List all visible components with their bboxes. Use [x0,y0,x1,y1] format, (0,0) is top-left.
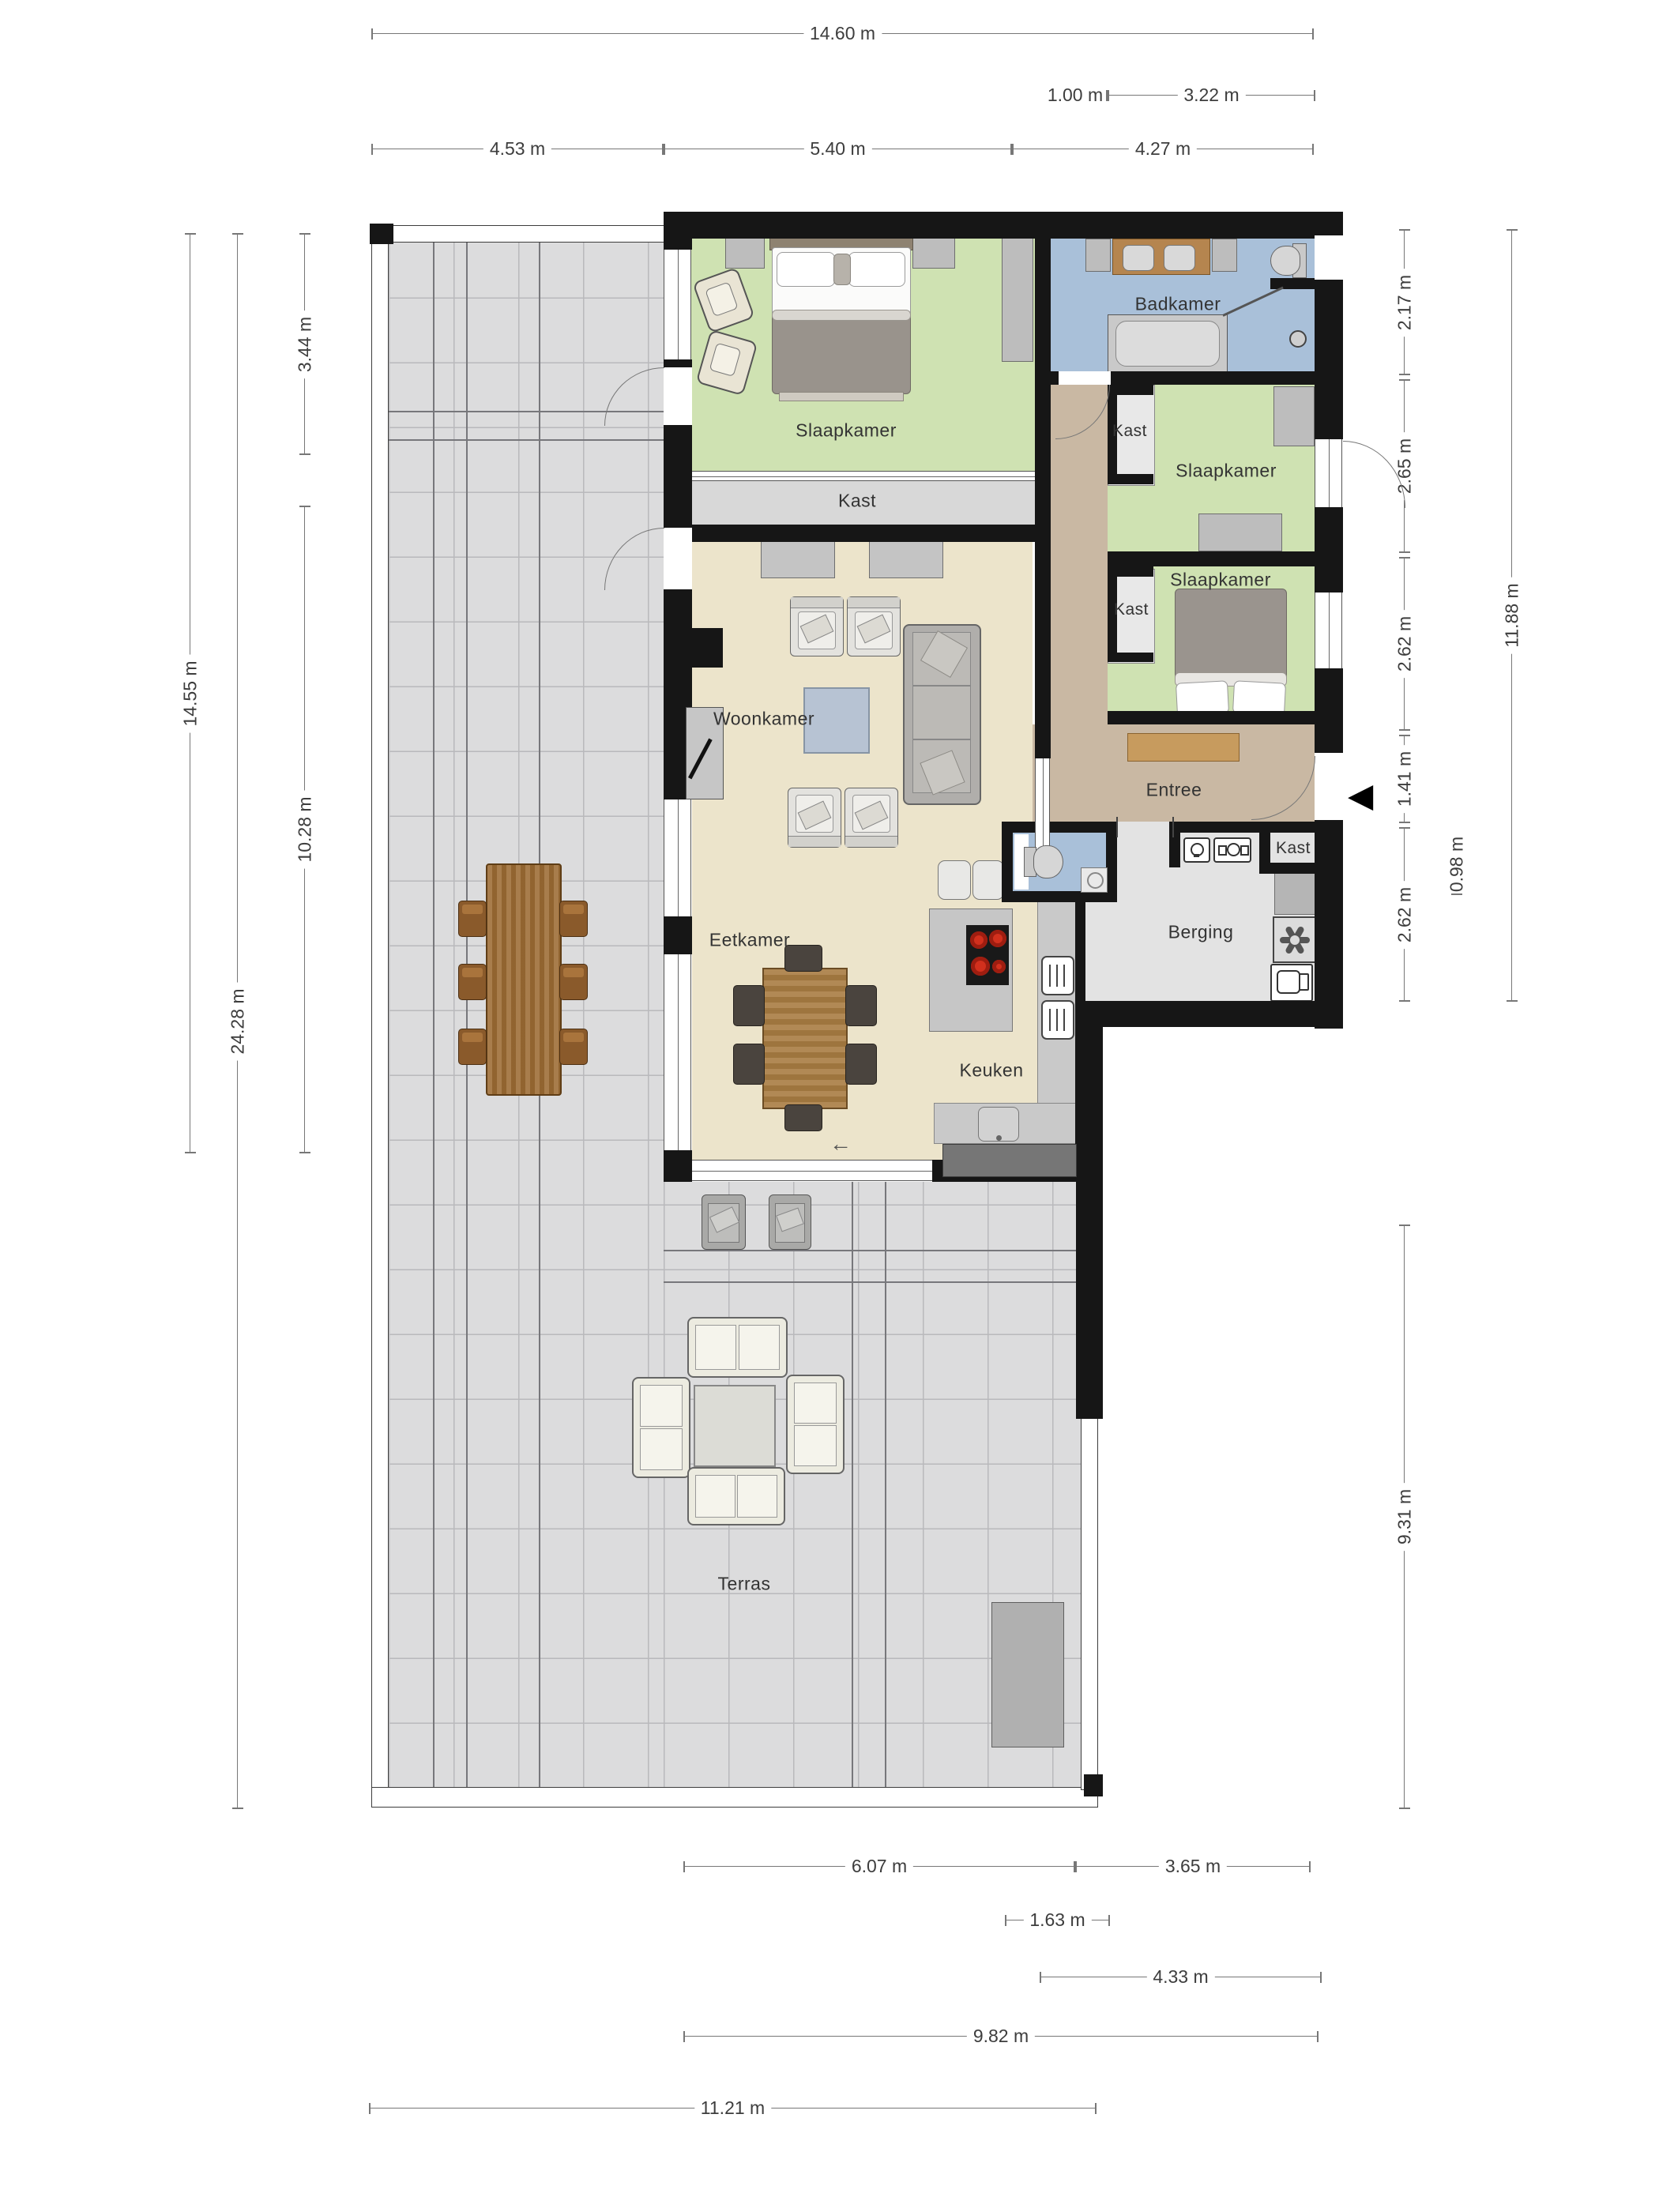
burner [971,957,990,976]
chair-back [563,968,584,977]
dim-label: 4.33 m [1146,1966,1214,1988]
dim-right-2-65: 2.65 m [1404,379,1405,553]
toilet-niche [1315,235,1343,280]
oven-bar [1056,1009,1058,1031]
dim-top-1-00: 1.00 m [1043,95,1108,96]
toilet-bowl [1270,246,1300,276]
entrance-arrow-icon: ◀ [1348,776,1373,814]
berging-opening-tick [1116,817,1118,837]
fuse [1240,845,1249,856]
oven-bar [1063,1009,1065,1031]
dining-chair [733,1044,765,1085]
wall-bathroom-bottom-stub [1051,371,1059,385]
kast-strip-sliding-doors [692,471,1035,481]
chair-back [791,597,843,608]
seat [737,1475,777,1518]
oven-bar [1063,965,1065,987]
terrace-armchair [702,1194,746,1250]
seat [739,1325,780,1370]
bar-stool [972,860,1004,900]
dim-label: 14.55 m [180,654,201,732]
outdoor-chair [559,1029,588,1065]
sliding-door-arrow-icon: ← [829,1131,852,1157]
chair-back [788,836,841,847]
terrace-planter [991,1602,1064,1747]
bed-pillow [777,252,835,287]
terrace-railing-bottom [371,1787,1098,1808]
dim-bottom-11-21: 11.21 m [369,2108,1097,2109]
window [664,954,691,1150]
sofa-cushion [912,686,971,739]
closet-wall [1108,385,1153,395]
wall-kitchen-right [1075,1001,1103,1182]
room-label-berging: Berging [1168,922,1234,943]
room-label-kast-3: Kast [1114,600,1149,619]
wall-left [664,212,692,250]
dim-label: 1.00 m [1041,85,1109,106]
dim-bottom-4-33: 4.33 m [1040,1977,1322,1977]
dial [1227,843,1240,856]
dim-right-0-98: 0.98 m [1456,833,1457,895]
dining-chair [845,1044,877,1085]
dim-bottom-3-65: 3.65 m [1075,1866,1311,1867]
wall-right [1315,820,1343,1029]
tile-joint [433,243,434,1789]
desk [1273,386,1315,446]
wall-right [1315,507,1343,592]
room-label-woonkamer: Woonkamer [713,709,814,730]
dim-label: 1.63 m [1023,1909,1091,1931]
washer-door [1299,973,1309,991]
seat [695,1475,735,1518]
chair-back [462,1033,483,1042]
toilet [1270,242,1308,278]
chair-back [563,905,584,914]
kitchen-island-dark [942,1144,1077,1177]
seat [794,1425,837,1466]
dim-right-1-41: 1.41 m [1404,735,1405,823]
dim-label: 3.44 m [295,310,316,378]
chair-back [563,1033,584,1042]
dim-label: 11.21 m [694,2097,771,2119]
bed-pillow-small [833,254,851,285]
seat [794,1382,837,1424]
wall-berging-bottom [1082,1001,1343,1027]
dim-right-11-88: 11.88 m [1511,229,1512,1002]
seat [695,1325,736,1370]
room-label-terras: Terras [718,1574,771,1595]
tile-joint [852,1182,853,1789]
wall-bed2-bed3 [1108,551,1315,566]
dim-left-14-55: 14.55 m [190,233,190,1153]
wall-left [664,916,692,954]
fuse [1218,845,1227,856]
burner [992,960,1006,973]
dim-top-5-40: 5.40 m [664,149,1012,149]
wall-left [664,425,692,528]
dim-label: 1.41 m [1394,745,1416,813]
bed-pillow [848,252,905,287]
oven-bar [1056,965,1058,987]
room-label-kast-strip: Kast [838,491,876,512]
electric-meter-icon [1213,837,1251,863]
tile-joint [466,243,468,1789]
dim-label: 10.28 m [295,790,316,868]
bed-duvet [1175,589,1287,679]
dim-top-3-22: 3.22 m [1108,95,1315,96]
dim-label: 24.28 m [228,982,249,1060]
dim-left-3-44: 3.44 m [304,233,305,455]
dining-chair [845,985,877,1026]
terrace-door-2 [664,528,692,589]
console-table [1127,733,1240,762]
lounge-sofa-bottom [687,1467,785,1525]
ventilation-unit-icon [1273,916,1317,963]
dim-bottom-6-07: 6.07 m [683,1866,1075,1867]
washing-machine-icon [1270,964,1313,1002]
window [664,799,691,916]
terrace-armchair [769,1194,811,1250]
armchair [788,788,841,848]
kitchen-island [929,908,1013,1032]
chair-back [462,968,483,977]
chair-cushion [705,281,738,317]
dim-right-2-62a: 2.62 m [1404,557,1405,731]
wall-entree-bottom-a [1173,822,1259,833]
tile-joint [885,1182,886,1789]
outdoor-chair [559,901,588,937]
terrace-railing-top [371,225,665,243]
room-label-entree: Entree [1146,780,1202,801]
wall-left [664,359,692,367]
bathroom-cabinet [1085,239,1111,272]
sink-basin [1087,872,1104,889]
wall-bedroom-bathroom [1035,239,1051,371]
dim-label: 0.98 m [1446,830,1468,898]
dim-left-10-28: 10.28 m [304,506,305,1153]
fan-hub [1288,934,1301,946]
dim-label: 5.40 m [803,138,871,160]
wall-kast4-bottom [1259,863,1315,874]
dim-top-total: 14.60 m [371,33,1314,34]
outdoor-chair [458,901,487,937]
sink-counter [934,1103,1077,1144]
lounge-table [694,1385,776,1467]
room-label-kast-4: Kast [1276,839,1311,858]
dim-label: 14.60 m [803,23,882,44]
oven-icon [1041,956,1074,995]
dim-label: 2.17 m [1394,268,1416,336]
room-label-keuken: Keuken [959,1060,1023,1082]
dim-label: 9.82 m [967,2026,1035,2047]
oven-bar [1049,1009,1051,1031]
window-bedroom-2 [1315,439,1342,507]
dim-bottom-1-63: 1.63 m [1005,1920,1110,1920]
room-label-slaapkamer-1: Slaapkamer [796,420,897,442]
dim-bottom-9-82: 9.82 m [683,2036,1319,2037]
wall-right [1315,668,1343,753]
terrace-railing-right [1081,1417,1098,1790]
sink [1123,245,1154,271]
dim-label: 4.53 m [483,138,551,160]
chair-back [845,836,897,847]
dim-top-4-27: 4.27 m [1012,149,1314,149]
bulb-base [1194,854,1199,857]
interior-glass-woonkamer-entree [1035,758,1050,855]
oven-icon [1041,1000,1074,1040]
seat [640,1385,683,1427]
bed-footboard [779,392,904,401]
dim-label: 3.22 m [1177,85,1245,106]
room-label-eetkamer: Eetkamer [709,930,790,951]
terrace-corner-bottomright [1084,1774,1103,1796]
wall-top [664,212,1343,239]
double-bed [1172,587,1288,723]
terrace-railing-left [371,225,389,1808]
dim-left-24-28: 24.28 m [237,233,238,1809]
induction-hob [966,925,1009,985]
chair-cushion [709,343,742,377]
tile-joint [664,1281,1081,1283]
wall-meter-stub [1169,822,1180,867]
closet-wall [1108,653,1153,662]
window [664,250,691,359]
lounge-sofa-right [786,1375,845,1474]
nightstand [725,237,765,269]
dim-label: 3.65 m [1159,1856,1227,1877]
dining-chair [784,1104,822,1131]
vanity-counter [1112,239,1210,275]
chair-back [848,597,900,608]
dresser [1198,513,1282,551]
double-bed [769,237,912,401]
dim-label: 4.27 m [1129,138,1197,160]
room-label-slaapkamer-3: Slaapkamer [1170,570,1271,591]
dim-right-9-31: 9.31 m [1404,1224,1405,1809]
bar-stool [938,860,971,900]
closet-wall [1108,566,1153,577]
shower-fixture [1289,330,1307,348]
dim-label: 2.62 m [1394,880,1416,948]
front-door [1315,753,1343,820]
bathroom-cabinet [1212,239,1237,272]
storage-cabinet [1274,867,1315,915]
outdoor-chair [458,964,487,1000]
bathroom-stub-wall [1270,278,1315,289]
lounge-sofa-top [687,1317,788,1378]
bathroom-door [1059,371,1111,385]
burner [989,930,1006,947]
bathtub-inner [1115,321,1220,367]
dim-label: 11.88 m [1502,577,1523,653]
bed-duvet-fold [772,310,911,321]
washer-drum [1277,970,1300,994]
sliding-door-terrace [692,1160,932,1181]
wardrobe [1002,235,1033,362]
wall-kaststrip-bottom [664,525,1051,542]
burner [970,931,987,949]
terrace-corner-topleft [370,224,393,244]
room-label-slaapkamer-2: Slaapkamer [1176,461,1277,482]
wall-corridor-left [1035,371,1051,758]
dim-right-2-17: 2.17 m [1404,229,1405,375]
wall-bathroom-bottom [1111,371,1315,385]
armchair [847,596,901,656]
lounge-sofa-left [632,1377,690,1478]
light-meter-icon [1183,837,1210,863]
toilet-bowl [1033,845,1063,878]
bed-duvet [772,315,911,394]
outdoor-chair [559,964,588,1000]
sofa [903,624,981,805]
terrace-door-1 [664,367,692,425]
closet-wall [1108,474,1153,484]
window-bedroom-3 [1315,592,1342,668]
armchair [845,788,898,848]
dim-label: 9.31 m [1394,1483,1416,1551]
tile-joint [664,1250,1081,1251]
fireplace-niche-top [680,628,723,668]
dim-label: 2.62 m [1394,610,1416,678]
room-label-kast-2: Kast [1112,422,1147,441]
dining-chair [733,985,765,1026]
wall-left [664,1150,692,1182]
seat [640,1428,683,1470]
outdoor-dining-table [486,863,562,1096]
fireplace-diagonal [688,739,713,780]
berging-opening-tick [1172,817,1174,837]
wall-bed3-bottom [1108,711,1315,724]
floorplan-page: { "unit": "m", "rooms": [ {"id": "slaapk… [0,0,1659,2212]
dim-top-4-53: 4.53 m [371,149,664,149]
oven-bar [1049,965,1051,987]
outdoor-chair [458,1029,487,1065]
chair-back [462,905,483,914]
dining-table [762,968,848,1109]
tile-joint [389,439,664,441]
sink [1164,245,1195,271]
bathtub [1108,314,1228,373]
nightstand [912,237,955,269]
armchair [790,596,844,656]
terrace-wall-right [1076,1182,1103,1419]
dim-right-2-62b: 2.62 m [1404,827,1405,1002]
wc-corner-sink [1081,867,1108,893]
room-label-badkamer: Badkamer [1135,294,1221,315]
wc-toilet [1024,842,1063,880]
faucet [996,1135,1002,1141]
dim-label: 6.07 m [845,1856,913,1877]
